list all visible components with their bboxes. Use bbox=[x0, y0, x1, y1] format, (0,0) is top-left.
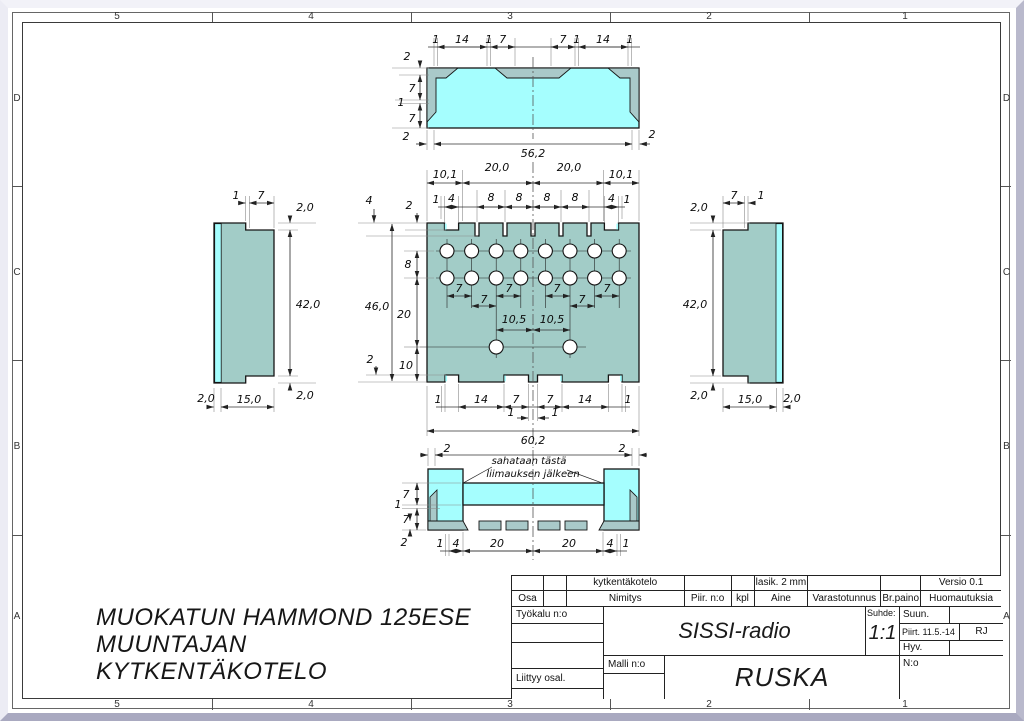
dim-label: 7 bbox=[499, 33, 506, 46]
drawing-sheet-page: 5 4 3 2 1 5 4 3 2 1 D C B A D C B A bbox=[0, 0, 1024, 721]
bottom-view: sahataan tästä liimauksen jälkeen 2 2 bbox=[395, 442, 648, 560]
left-side-view: 1 7 2,0 42,0 2,0 2,0 15,0 bbox=[197, 189, 320, 412]
dim-label: 2 bbox=[649, 128, 656, 141]
dim-label: 4 bbox=[607, 537, 614, 550]
tb-cell-empty bbox=[512, 624, 604, 643]
dim-label: 2 bbox=[406, 199, 413, 212]
dim-label: 56,2 bbox=[521, 147, 546, 160]
dim-label: 10,5 bbox=[540, 313, 565, 326]
callout-text: sahataan tästä bbox=[492, 456, 567, 467]
dim-label: 20,0 bbox=[557, 161, 582, 174]
dim-label: 7 bbox=[258, 189, 265, 202]
dim-label: 1 bbox=[398, 96, 405, 109]
top-view: 1 14 1 7 7 1 14 1 2 7 1 7 bbox=[392, 33, 656, 160]
dim-label: 1 bbox=[437, 537, 444, 550]
tb-cell-empty bbox=[732, 576, 755, 590]
note-line2: MUUNTAJAN KYTKENTÄKOTELO bbox=[96, 631, 476, 685]
tb-tool-label: Työkalu n:o bbox=[512, 607, 604, 624]
dim-label: 2,0 bbox=[690, 389, 708, 402]
dim-label: 2,0 bbox=[296, 201, 314, 214]
dim-label: 20 bbox=[562, 537, 576, 550]
dim-label: 46,0 bbox=[365, 300, 390, 313]
tb-model-label: Malli n:o bbox=[604, 656, 665, 674]
dim-label: 1 bbox=[233, 189, 240, 202]
dim-label: 2,0 bbox=[197, 392, 215, 405]
tb-designed-label: Suun. bbox=[900, 607, 950, 624]
tb-project-name: SISSI-radio bbox=[604, 607, 865, 656]
dim-label: 8 bbox=[516, 191, 523, 204]
dim-label: 2 bbox=[404, 50, 411, 63]
tb-header-nimitys: Nimitys bbox=[567, 591, 685, 606]
dim-label: 1 bbox=[435, 393, 442, 406]
main-view: 10,1 20,0 20,0 10,1 1 4 8 8 8 8 bbox=[358, 161, 639, 448]
dim-label: 10,1 bbox=[433, 168, 458, 181]
dim-label: 1 bbox=[432, 33, 439, 46]
callout-text: liimauksen jälkeen bbox=[486, 469, 579, 480]
dim-label: 7 bbox=[554, 282, 561, 295]
title-block: kytkentäkotelo lasik. 2 mm Versio 0.1 Os… bbox=[511, 575, 1001, 699]
dim-label: 8 bbox=[572, 191, 579, 204]
tb-cell-empty bbox=[512, 643, 604, 669]
dim-label: 1 bbox=[395, 498, 402, 511]
dim-label: 14 bbox=[578, 393, 592, 406]
dim-label: 1 bbox=[625, 393, 632, 406]
tb-part-name: kytkentäkotelo bbox=[567, 576, 685, 590]
tb-cell-empty bbox=[512, 576, 544, 590]
dim-label: 2 bbox=[619, 442, 626, 455]
dim-label: 7 bbox=[604, 282, 611, 295]
dim-label: 14 bbox=[455, 33, 469, 46]
dim-label: 7 bbox=[547, 393, 554, 406]
tb-header-aine: Aine bbox=[755, 591, 809, 606]
tb-related-label: Liittyy osal. bbox=[512, 669, 604, 689]
dim-label: 7 bbox=[409, 82, 416, 95]
dim-label: 7 bbox=[409, 112, 416, 125]
dim-label: 10,5 bbox=[502, 313, 527, 326]
dim-label: 2,0 bbox=[296, 389, 314, 402]
tb-cell-empty bbox=[544, 591, 567, 606]
dim-label: 1 bbox=[433, 193, 440, 206]
dim-label: 7 bbox=[560, 33, 567, 46]
dim-label: 15,0 bbox=[738, 393, 763, 406]
dim-label: 4 bbox=[448, 192, 455, 205]
tb-cell-empty bbox=[544, 576, 567, 590]
dim-label: 7 bbox=[731, 189, 738, 202]
tb-cell-empty bbox=[881, 576, 921, 590]
tb-number-label: N:o bbox=[900, 656, 1003, 699]
dim-label: 7 bbox=[403, 513, 410, 526]
dim-label: 1 bbox=[485, 33, 492, 46]
tb-version: Versio 0.1 bbox=[921, 576, 1001, 590]
tb-scale-value: 1:1 bbox=[866, 618, 899, 648]
dim-label: 1 bbox=[573, 33, 580, 46]
tb-header-osa: Osa bbox=[512, 591, 544, 606]
dim-label: 20 bbox=[490, 537, 504, 550]
tb-header-piirno: Piir. n:o bbox=[685, 591, 732, 606]
dim-label: 7 bbox=[403, 488, 410, 501]
tb-approved-label: Hyv. bbox=[900, 641, 950, 656]
dim-label: 1 bbox=[508, 406, 515, 419]
dim-label: 7 bbox=[513, 393, 520, 406]
tb-cell-empty bbox=[808, 576, 881, 590]
dim-label: 14 bbox=[474, 393, 488, 406]
dim-label: 2 bbox=[403, 130, 410, 143]
dim-label: 1 bbox=[626, 33, 633, 46]
dim-label: 7 bbox=[456, 282, 463, 295]
tb-drawn-by: RJ bbox=[961, 624, 1002, 641]
dim-label: 60,2 bbox=[521, 434, 546, 447]
dim-label: 1 bbox=[623, 537, 630, 550]
dim-label: 4 bbox=[453, 537, 460, 550]
dim-label: 2 bbox=[367, 353, 374, 366]
dim-label: 2 bbox=[401, 536, 408, 549]
dim-label: 4 bbox=[608, 192, 615, 205]
tb-header-brpaino: Br.paino bbox=[881, 591, 921, 606]
dim-label: 1 bbox=[552, 406, 559, 419]
dim-label: 8 bbox=[488, 191, 495, 204]
drawing-note: MUOKATUN HAMMOND 125ESE MUUNTAJAN KYTKEN… bbox=[96, 604, 476, 685]
dim-label: 15,0 bbox=[237, 393, 262, 406]
tb-product-name: RUSKA bbox=[665, 656, 899, 699]
dim-label: 2,0 bbox=[690, 201, 708, 214]
dim-label: 2,0 bbox=[783, 392, 801, 405]
dim-label: 1 bbox=[624, 193, 631, 206]
note-line1: MUOKATUN HAMMOND 125ESE bbox=[96, 604, 476, 631]
tb-drawn-label: Piirt. 11.5.-14 bbox=[900, 624, 960, 641]
dim-label: 10 bbox=[399, 359, 413, 372]
dim-label: 20,0 bbox=[485, 161, 510, 174]
dim-label: 8 bbox=[544, 191, 551, 204]
tb-material-value: lasik. 2 mm bbox=[755, 576, 809, 590]
dim-label: 10,1 bbox=[609, 168, 634, 181]
tb-scale-label: Suhde: bbox=[866, 607, 899, 618]
dim-label: 8 bbox=[405, 258, 412, 271]
dim-label: 7 bbox=[579, 293, 586, 306]
dim-label: 7 bbox=[481, 293, 488, 306]
right-side-view: 7 1 2,0 42,0 2,0 15,0 2,0 bbox=[683, 189, 801, 412]
dim-label: 2 bbox=[444, 442, 451, 455]
dim-label: 1 bbox=[758, 189, 765, 202]
tb-header-varastotunnus: Varastotunnus bbox=[808, 591, 881, 606]
tb-header-huomautuksia: Huomautuksia bbox=[921, 591, 1001, 606]
dim-label: 4 bbox=[366, 194, 373, 207]
dim-label: 20 bbox=[397, 308, 411, 321]
dim-label: 42,0 bbox=[683, 298, 708, 311]
dim-label: 7 bbox=[506, 282, 513, 295]
dim-label: 14 bbox=[596, 33, 610, 46]
tb-cell-empty bbox=[685, 576, 732, 590]
tb-header-kpl: kpl bbox=[732, 591, 755, 606]
dim-label: 42,0 bbox=[296, 298, 321, 311]
